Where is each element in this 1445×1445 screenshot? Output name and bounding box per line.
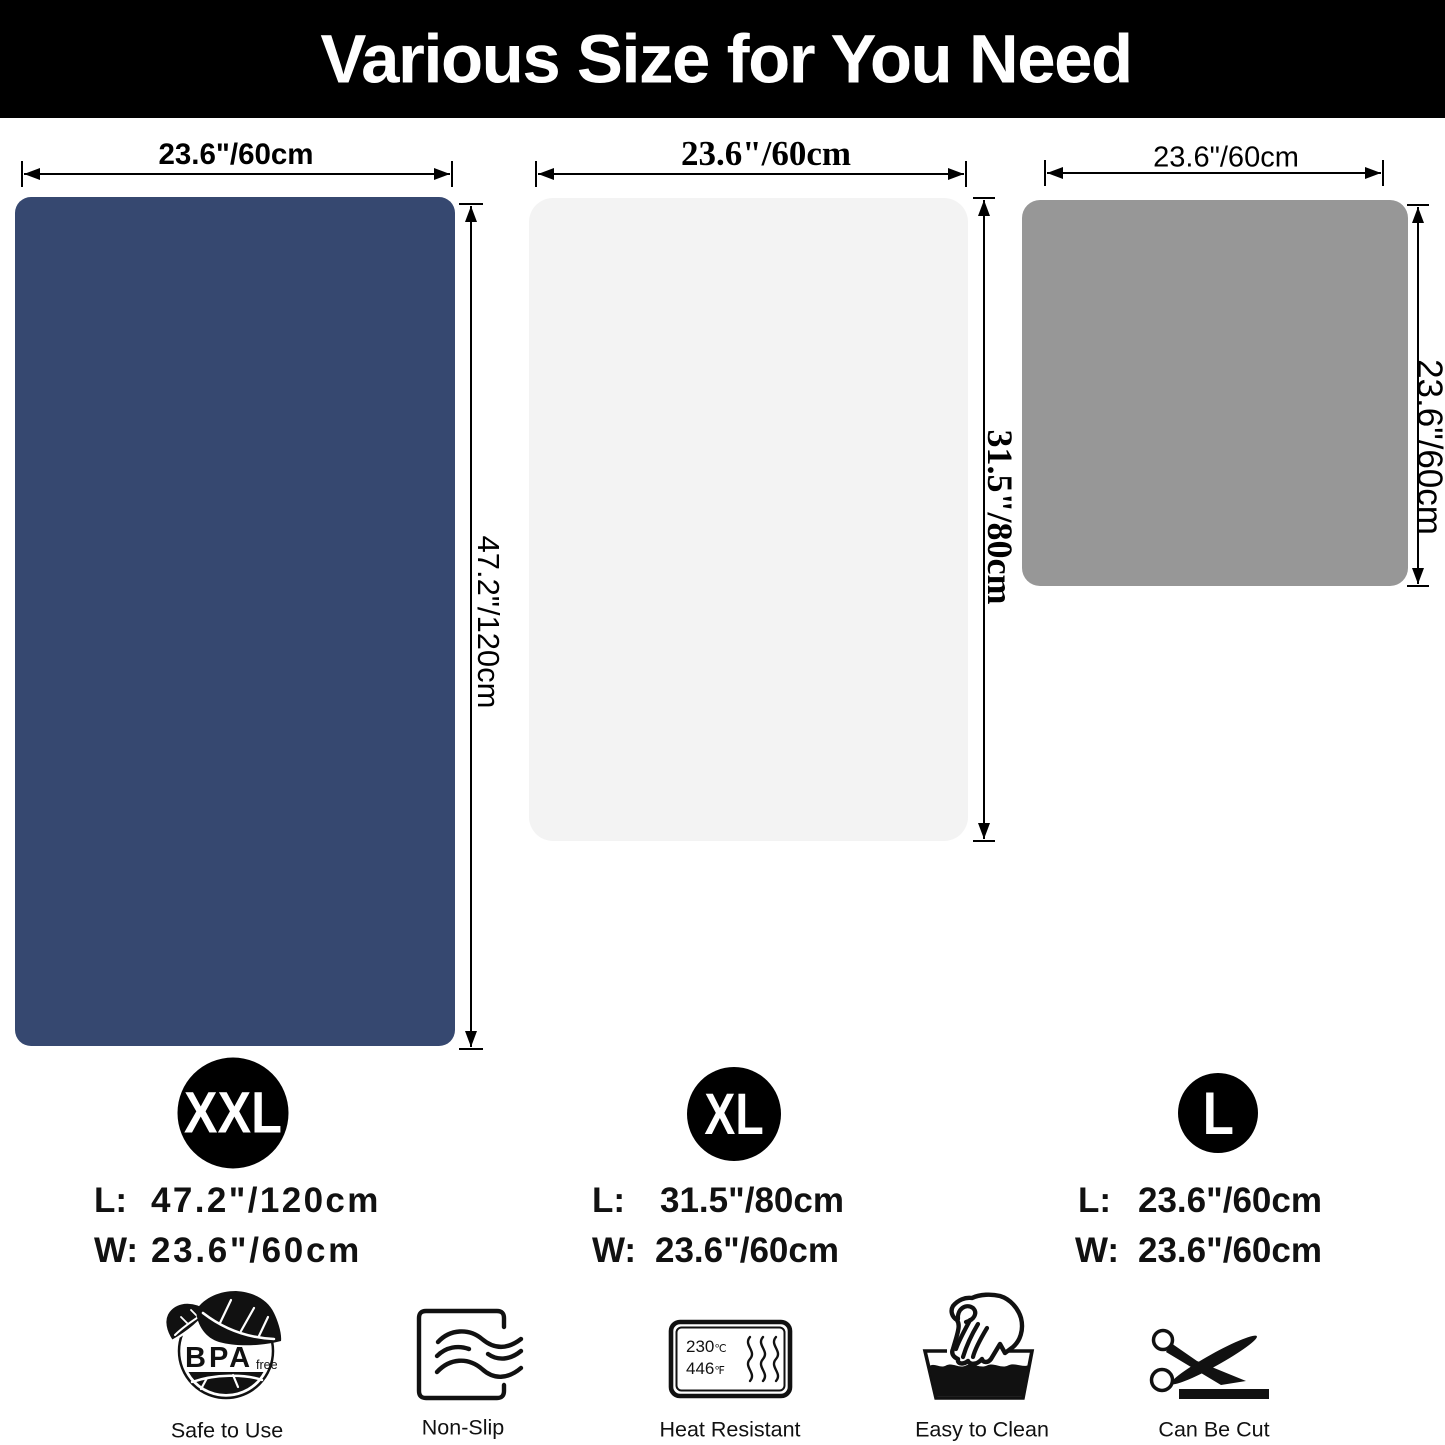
svg-text:446℉: 446℉ xyxy=(686,1359,725,1378)
svg-text:BPA: BPA xyxy=(185,1342,253,1374)
svg-text:free: free xyxy=(256,1358,278,1372)
svg-text:230℃: 230℃ xyxy=(686,1337,727,1356)
